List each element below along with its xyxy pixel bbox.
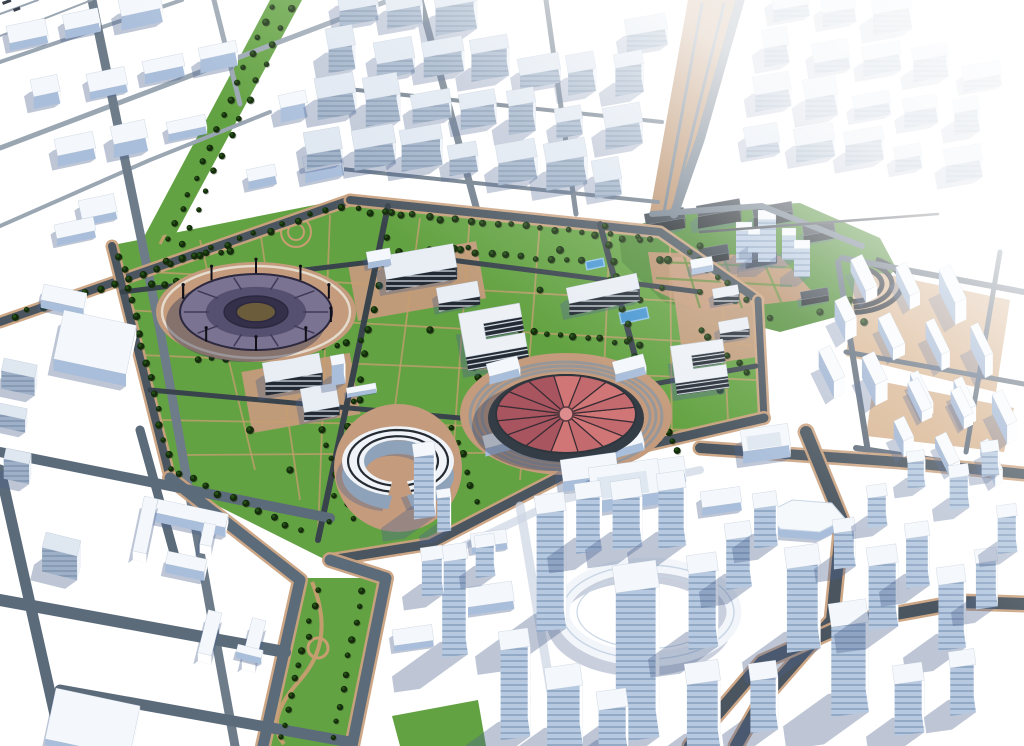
atmosphere-fade (0, 0, 1024, 746)
masterplan-3d-aerial-view (0, 0, 1024, 746)
city-masterplan-render (0, 0, 1024, 746)
